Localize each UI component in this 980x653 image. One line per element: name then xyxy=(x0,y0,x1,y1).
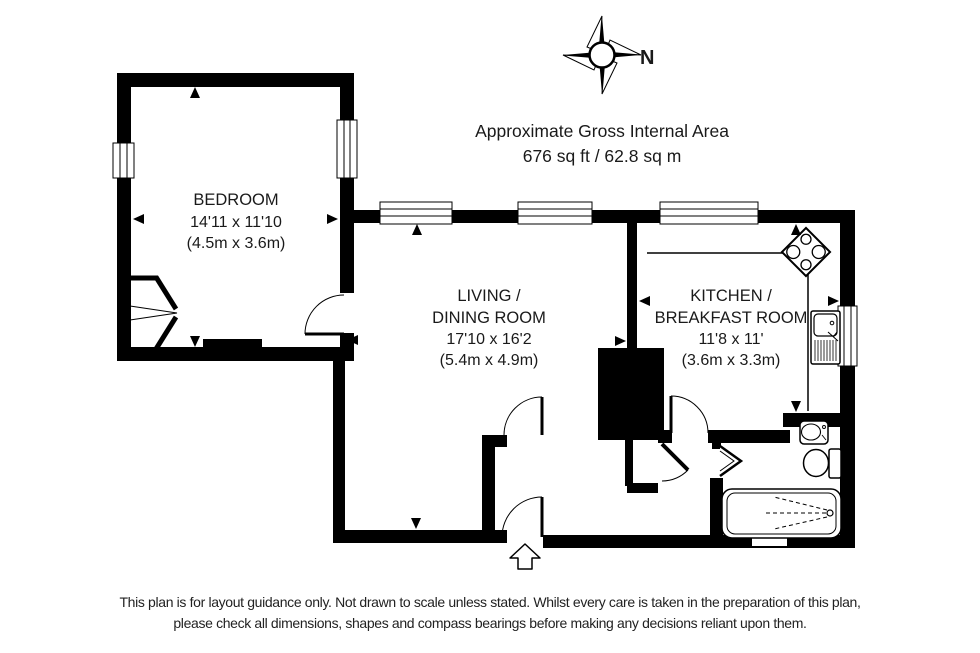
floor-plan-page: N Approximate Gross Internal Area 676 sq… xyxy=(0,0,980,653)
chimney-block xyxy=(598,348,664,440)
disclaimer-line1: This plan is for layout guidance only. N… xyxy=(119,594,860,610)
kitchen-size-imperial: 11'8 x 11' xyxy=(698,331,763,348)
kitchen-arrow-down xyxy=(791,401,801,412)
bedroom-arrow-down xyxy=(190,336,200,347)
kitchen-name-line2: BREAKFAST ROOM xyxy=(655,309,808,327)
toilet-icon xyxy=(804,449,842,478)
floor-plan: N Approximate Gross Internal Area 676 sq… xyxy=(0,0,980,653)
living-dining-label: LIVING / DINING ROOM 17'10 x 16'2 (5.4m … xyxy=(432,287,546,369)
kitchen-breakfast-label: KITCHEN / BREAKFAST ROOM 11'8 x 11' (3.6… xyxy=(655,287,808,369)
north-label: N xyxy=(640,47,654,69)
entrance-arrow-icon xyxy=(510,544,540,569)
bathroom-folding-door xyxy=(720,446,741,476)
living-window-1 xyxy=(380,202,452,224)
hob-icon xyxy=(782,228,830,276)
living-arrow-down xyxy=(411,518,421,529)
kitchen-window-top xyxy=(660,202,758,224)
hall-living-door xyxy=(504,397,542,435)
plan-title: Approximate Gross Internal Area xyxy=(475,121,729,141)
bedroom-label: BEDROOM 14'11 x 11'10 (4.5m x 3.6m) xyxy=(187,191,286,252)
kitchen-arrow-up xyxy=(791,224,801,235)
living-arrow-up xyxy=(412,224,422,235)
kitchen-arrow-left xyxy=(639,296,650,306)
living-name-line2: DINING ROOM xyxy=(432,309,546,327)
bedroom-arrow-up xyxy=(190,87,200,98)
sink-icon xyxy=(811,311,840,364)
wardrobe-icon xyxy=(128,277,177,349)
living-size-metric: (5.4m x 4.9m) xyxy=(440,352,539,369)
bedroom-arrow-left xyxy=(133,214,144,224)
bedroom-name: BEDROOM xyxy=(193,191,278,209)
living-arrow-right xyxy=(615,336,626,346)
bedroom-door xyxy=(305,295,344,334)
bedroom-size-imperial: 14'11 x 11'10 xyxy=(190,214,282,231)
hall-cupboard-door xyxy=(662,444,688,481)
kitchen-door xyxy=(671,396,708,433)
kitchen-size-metric: (3.6m x 3.3m) xyxy=(682,352,781,369)
bedroom-window-right xyxy=(337,120,357,178)
living-size-imperial: 17'10 x 16'2 xyxy=(446,331,531,348)
plan-area: 676 sq ft / 62.8 sq m xyxy=(523,146,682,166)
front-door xyxy=(502,497,542,537)
bedroom-window-left xyxy=(113,143,134,178)
disclaimer-line2: please check all dimensions, shapes and … xyxy=(173,615,806,631)
kitchen-window-right xyxy=(838,306,857,366)
disclaimer: This plan is for layout guidance only. N… xyxy=(119,594,860,631)
living-window-2 xyxy=(518,202,592,224)
bedroom-size-metric: (4.5m x 3.6m) xyxy=(187,235,286,252)
bedroom-arrow-right xyxy=(327,214,338,224)
chimney-breast-bedroom xyxy=(203,339,262,349)
kitchen-arrow-right xyxy=(828,296,839,306)
kitchen-name-line1: KITCHEN / xyxy=(690,287,772,305)
compass-rose-icon: N xyxy=(563,16,654,94)
bathtub-icon xyxy=(722,489,841,538)
basin-icon xyxy=(800,421,828,444)
living-name-line1: LIVING / xyxy=(457,287,521,305)
